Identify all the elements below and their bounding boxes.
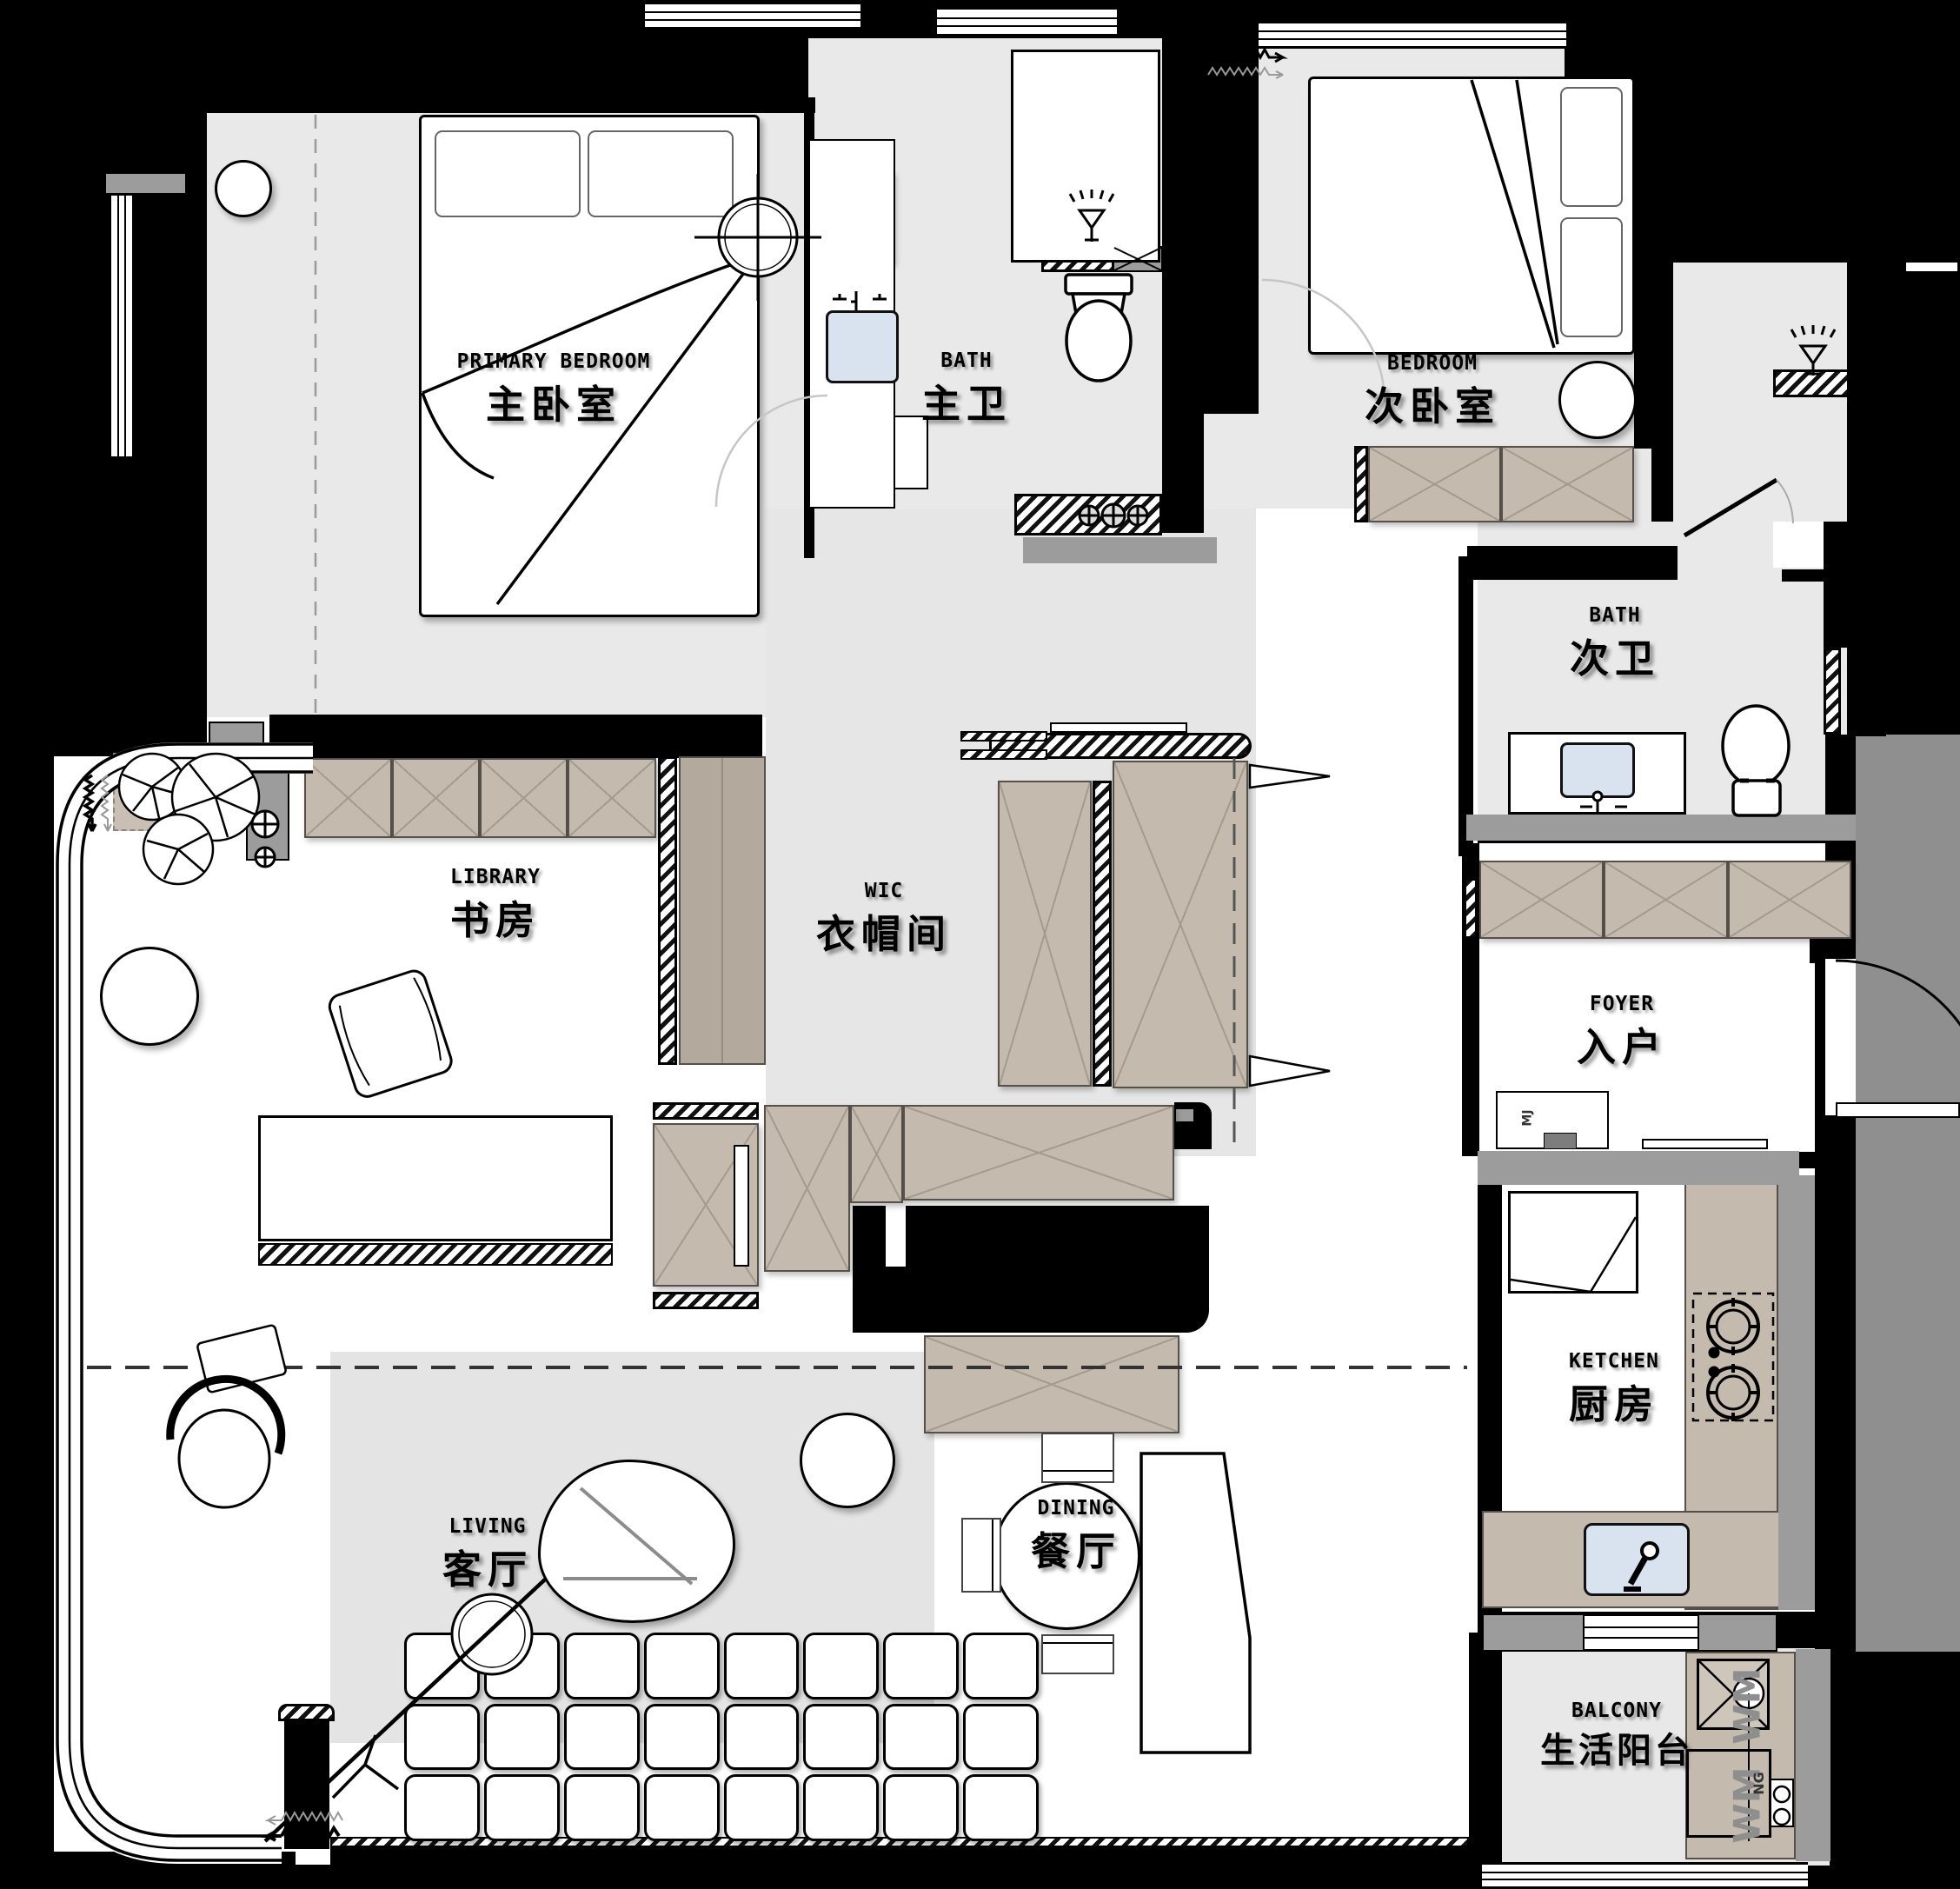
gray-band xyxy=(1466,815,1856,841)
wall-bed-lib xyxy=(269,715,762,758)
plant-pad xyxy=(113,753,245,831)
label-library: LIBRARY 书房 xyxy=(450,866,541,945)
wall xyxy=(1830,1652,1960,1889)
label-gas: NG xyxy=(1751,1772,1767,1795)
sofa-seat xyxy=(883,1704,959,1771)
hatch-pier xyxy=(1824,648,1841,735)
wall xyxy=(207,97,815,113)
cabinet xyxy=(924,1335,1179,1433)
fridge xyxy=(1508,1191,1638,1294)
sofa-seat xyxy=(564,1774,640,1841)
hatch-cap xyxy=(278,1704,335,1721)
label-balcony: BALCONY 生活阳台 xyxy=(1540,1699,1693,1773)
hatch-pier xyxy=(1464,878,1478,939)
outdoor-corridor xyxy=(1856,735,1960,1654)
window xyxy=(645,2,860,30)
sofa-seat xyxy=(404,1774,480,1841)
wall xyxy=(1469,1633,1502,1867)
window-sill xyxy=(104,172,187,195)
pillow xyxy=(435,130,581,217)
sill xyxy=(1482,1613,1585,1652)
wall xyxy=(1634,24,1673,449)
hatch-wall xyxy=(1093,781,1112,1087)
gas-meter-pad xyxy=(246,755,289,861)
wic-island-cabinet xyxy=(998,781,1092,1087)
foyer-cabinet xyxy=(1604,861,1728,939)
foyer-step xyxy=(1478,1151,1799,1185)
floor-secondary-bath-upper xyxy=(1673,261,1847,548)
wic-partition-notch xyxy=(886,1206,906,1267)
wic-island-cabinet xyxy=(1113,761,1248,1088)
wall xyxy=(1204,24,1259,414)
gray-band xyxy=(1023,537,1217,563)
label-primary-bedroom: PRIMARY BEDROOM 主卧室 xyxy=(457,350,651,429)
wall xyxy=(0,1852,296,1889)
foyer-cabinet xyxy=(1479,861,1604,939)
pillow xyxy=(588,130,734,217)
entry-door-leaf xyxy=(1836,1102,1960,1118)
hatch-wall xyxy=(653,1102,759,1120)
wall xyxy=(330,1847,1469,1889)
washer-panel xyxy=(1770,1779,1794,1827)
kitchen-sink xyxy=(1584,1523,1690,1596)
desk xyxy=(258,1115,613,1241)
sofa-seat xyxy=(484,1774,560,1841)
floor-hall xyxy=(1256,509,1478,1156)
window xyxy=(937,7,1117,37)
closet-door-leaf xyxy=(734,1145,749,1267)
foyer-cabinet xyxy=(1728,861,1851,939)
sofa-seat xyxy=(883,1633,959,1699)
label-kitchen: KETCHEN 厨房 xyxy=(1569,1350,1659,1429)
tv-wall xyxy=(284,1719,329,1849)
label-dining: DINING 餐厅 xyxy=(1031,1497,1121,1576)
pocket-track xyxy=(960,731,1047,742)
sofa-seat xyxy=(644,1774,720,1841)
nightstand xyxy=(215,160,272,217)
pouf xyxy=(100,947,199,1046)
label-primary-bath: BATH 主卫 xyxy=(921,349,1012,429)
wall xyxy=(1162,24,1204,533)
shower-room xyxy=(1011,50,1160,263)
wall xyxy=(1673,0,1960,263)
floor-plan: PRIMARY BEDROOM 主卧室 BATH 主卫 BEDROOM 次卧室 … xyxy=(0,0,1960,1889)
cabinet xyxy=(764,1105,850,1272)
hatch-wall xyxy=(1773,369,1850,397)
label-foyer: FOYER 入户 xyxy=(1577,993,1667,1072)
sliding-door-leaf xyxy=(1050,722,1187,733)
sofa-seat xyxy=(803,1774,879,1841)
label-secondary-bedroom: BEDROOM 次卧室 xyxy=(1365,352,1500,431)
sofa-seat xyxy=(724,1633,800,1699)
window-pass xyxy=(1585,1613,1698,1652)
wall xyxy=(1815,1168,1856,1655)
label-entry-cabinet: MJ xyxy=(1521,1109,1535,1126)
label-living: LIVING 客厅 xyxy=(442,1515,533,1594)
dining-chair xyxy=(1041,1634,1114,1674)
sofa-seat xyxy=(963,1774,1039,1841)
bath-sink xyxy=(826,310,899,383)
wardrobe-side-panel xyxy=(679,756,766,1065)
sofa-seat xyxy=(404,1704,480,1771)
sofa-seat xyxy=(644,1633,720,1699)
sofa-seat xyxy=(644,1704,720,1771)
sofa-seat xyxy=(484,1704,560,1771)
window xyxy=(1482,1862,1808,1889)
wall xyxy=(1847,243,1886,736)
modular-sofa xyxy=(404,1633,1039,1841)
sofa-seat xyxy=(963,1704,1039,1771)
dining-chair xyxy=(961,1518,1001,1593)
pillow xyxy=(1560,217,1623,337)
sofa-seat xyxy=(564,1633,640,1699)
wall xyxy=(1782,569,1824,582)
wall xyxy=(0,532,54,1889)
wardrobe-unit xyxy=(568,758,656,838)
hatch-wall xyxy=(1014,494,1162,535)
gray-chip xyxy=(1176,1109,1193,1121)
side-table xyxy=(800,1413,895,1508)
wardrobe-unit xyxy=(1368,446,1501,522)
desk-ledge xyxy=(258,1243,613,1266)
cabinet xyxy=(903,1105,1174,1201)
label-secondary-bath: BATH 次卫 xyxy=(1570,604,1660,683)
sill xyxy=(1698,1613,1777,1652)
sofa-seat xyxy=(484,1633,560,1699)
hatch-pier xyxy=(1354,446,1368,522)
door-nook xyxy=(1773,522,1824,568)
wardrobe-unit xyxy=(392,758,480,838)
hatch-wall xyxy=(653,1292,759,1309)
entry-cabinet-chip xyxy=(1544,1133,1577,1149)
wardrobe-unit xyxy=(304,758,392,838)
sofa-seat xyxy=(564,1704,640,1771)
wardrobe-unit xyxy=(480,758,568,838)
sofa-seat xyxy=(963,1633,1039,1699)
wall xyxy=(1458,556,1473,856)
sofa-seat xyxy=(404,1633,480,1699)
kitchen-side-strip xyxy=(1778,1175,1815,1610)
pillow xyxy=(1560,87,1623,207)
foyer-bench xyxy=(1642,1139,1768,1149)
sofa-seat xyxy=(883,1774,959,1841)
sofa-seat xyxy=(724,1774,800,1841)
nightstand xyxy=(1558,361,1637,439)
wall xyxy=(1825,1114,1856,1170)
balcony-side-strip xyxy=(1796,1649,1830,1861)
pocket-track xyxy=(960,749,1047,760)
label-washer-top: WM xyxy=(1726,1667,1769,1744)
cabinet xyxy=(850,1105,903,1203)
sofa-seat xyxy=(803,1704,879,1771)
sofa-seat xyxy=(803,1633,879,1699)
wall xyxy=(1467,546,1678,580)
window xyxy=(1259,21,1566,49)
bath-sink xyxy=(1560,742,1635,798)
sofa-seat xyxy=(724,1704,800,1771)
entry-opening xyxy=(1825,959,1856,1115)
wardrobe-unit xyxy=(1501,446,1634,522)
label-wic: WIC 衣帽间 xyxy=(816,880,952,959)
wic-partition xyxy=(853,1206,1209,1333)
gray-chip xyxy=(209,722,264,748)
dining-chair xyxy=(1041,1433,1114,1483)
hatch-wall xyxy=(658,756,677,1065)
window xyxy=(109,196,135,456)
wall xyxy=(1824,522,1858,648)
